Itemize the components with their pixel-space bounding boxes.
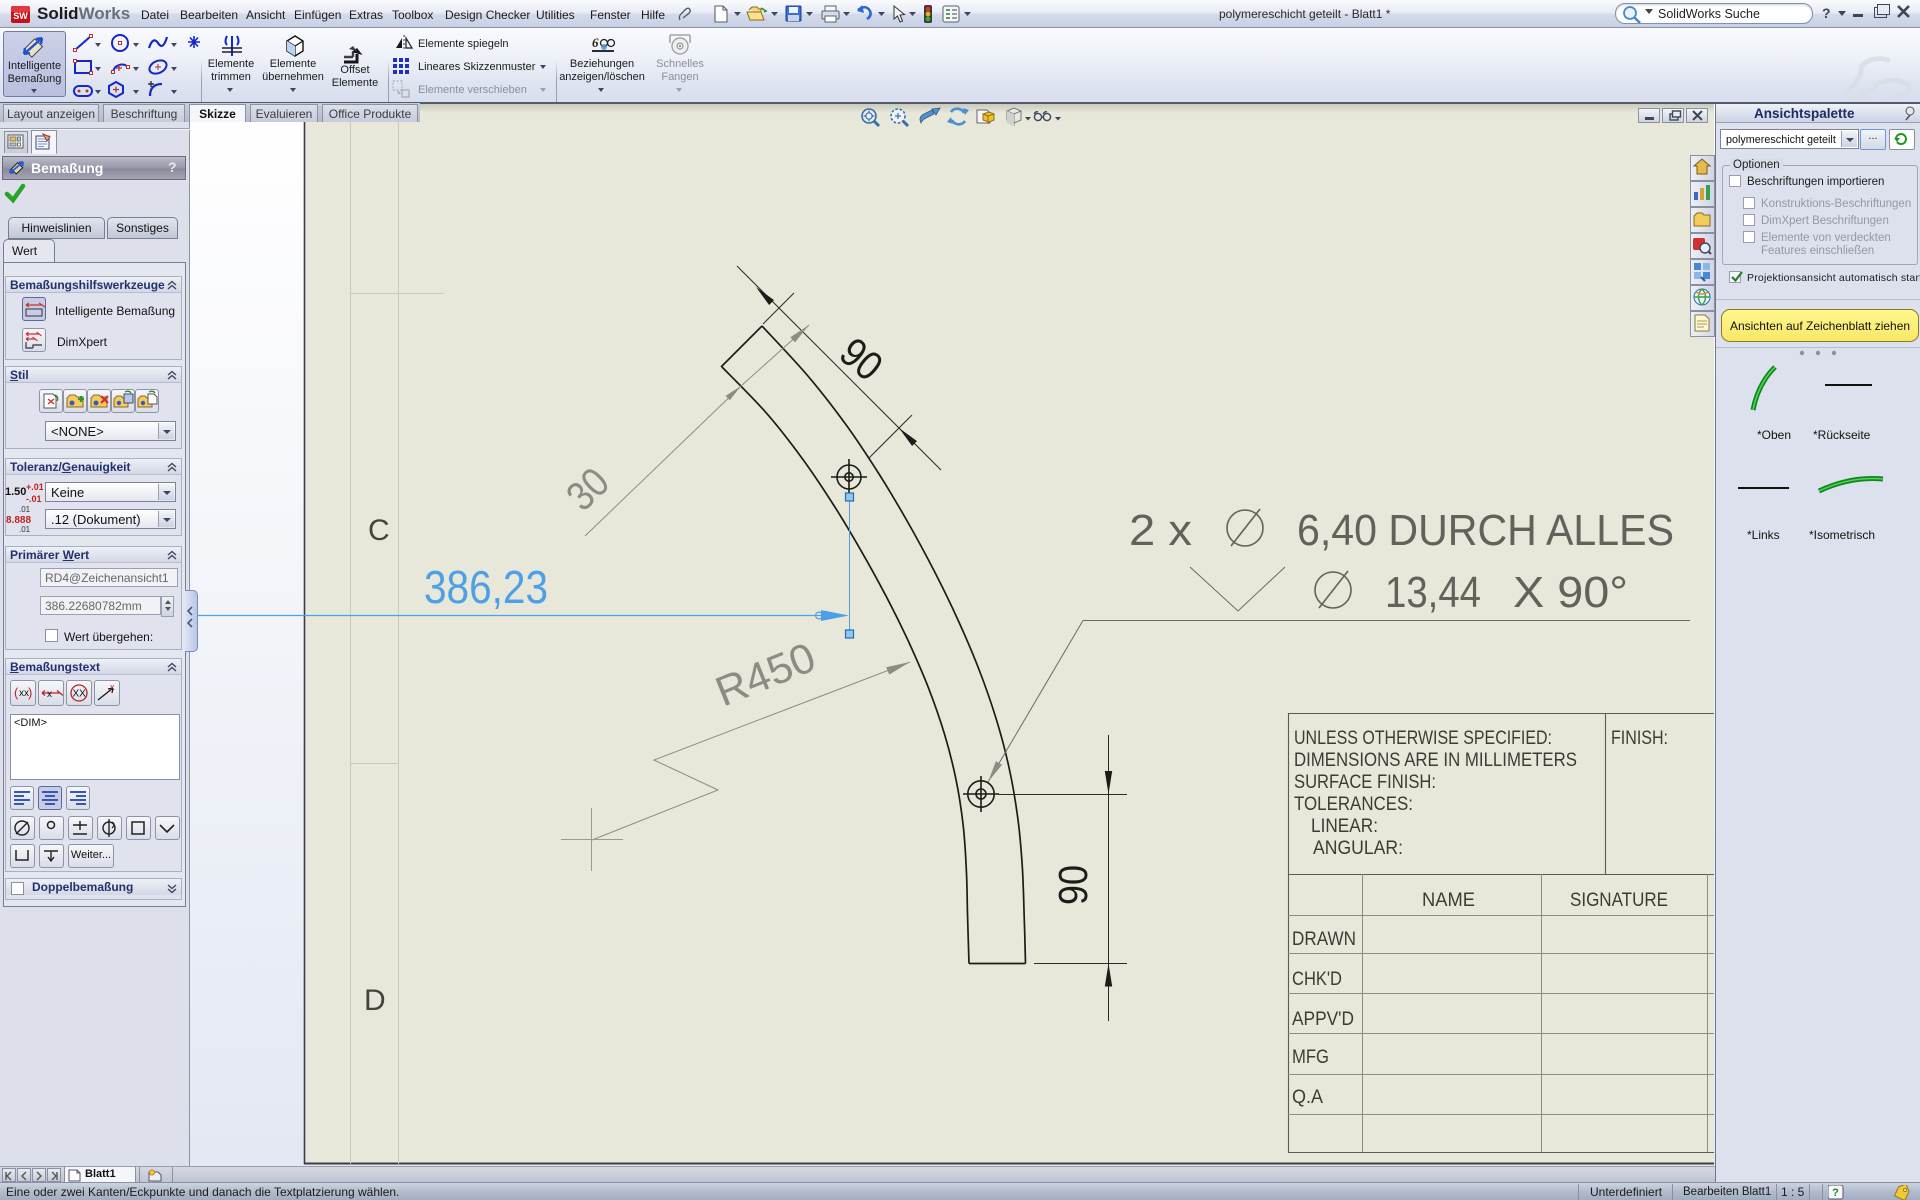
svg-text:ANGULAR:: ANGULAR:	[1313, 838, 1403, 859]
svg-text:): )	[28, 685, 32, 700]
svg-text:2 x: 2 x	[1129, 506, 1192, 555]
svg-text:TOLERANCES:: TOLERANCES:	[1294, 794, 1413, 815]
svg-text:APPV'D: APPV'D	[1292, 1009, 1354, 1030]
svg-text:DIMENSIONS ARE IN MILLIMETERS: DIMENSIONS ARE IN MILLIMETERS	[1294, 750, 1577, 771]
svg-text:386,23: 386,23	[424, 561, 548, 613]
svg-text:SURFACE FINISH:: SURFACE FINISH:	[1294, 772, 1436, 793]
svg-text:*Isometrisch: *Isometrisch	[1809, 528, 1875, 542]
svg-text:SW: SW	[13, 11, 28, 21]
svg-text:*Links: *Links	[1747, 528, 1780, 542]
svg-text:x: x	[110, 682, 115, 692]
svg-text:DRAWN: DRAWN	[1292, 929, 1356, 950]
svg-text:.01: .01	[19, 525, 31, 534]
svg-text:Q.A: Q.A	[1292, 1087, 1323, 1108]
svg-text:*Oben: *Oben	[1757, 428, 1791, 442]
svg-text:LINEAR:: LINEAR:	[1311, 816, 1378, 837]
svg-text:C: C	[368, 514, 390, 547]
svg-text:CHK'D: CHK'D	[1292, 969, 1342, 990]
svg-text:?: ?	[1832, 1187, 1839, 1199]
svg-text:D: D	[364, 984, 386, 1017]
svg-text:13,44: 13,44	[1385, 568, 1481, 617]
svg-text:90: 90	[1050, 865, 1096, 905]
svg-text:NAME: NAME	[1422, 890, 1475, 911]
svg-text:*Rückseite: *Rückseite	[1813, 428, 1871, 442]
svg-text:+.01: +.01	[26, 482, 43, 492]
svg-text:.01: .01	[19, 505, 31, 514]
svg-text:6: 6	[592, 35, 599, 50]
svg-text:x: x	[47, 689, 52, 700]
svg-text:6,40 DURCH ALLES: 6,40 DURCH ALLES	[1297, 506, 1674, 555]
svg-text:FINISH:: FINISH:	[1611, 728, 1668, 749]
svg-text:1.50: 1.50	[5, 486, 26, 498]
svg-text:-.01: -.01	[26, 494, 42, 504]
svg-text:SIGNATURE: SIGNATURE	[1570, 890, 1668, 911]
svg-text:MFG: MFG	[1292, 1047, 1329, 1068]
svg-text:X 90°: X 90°	[1513, 568, 1628, 617]
svg-text:XX: XX	[73, 689, 87, 700]
svg-text:UNLESS OTHERWISE SPECIFIED:: UNLESS OTHERWISE SPECIFIED:	[1294, 728, 1552, 749]
